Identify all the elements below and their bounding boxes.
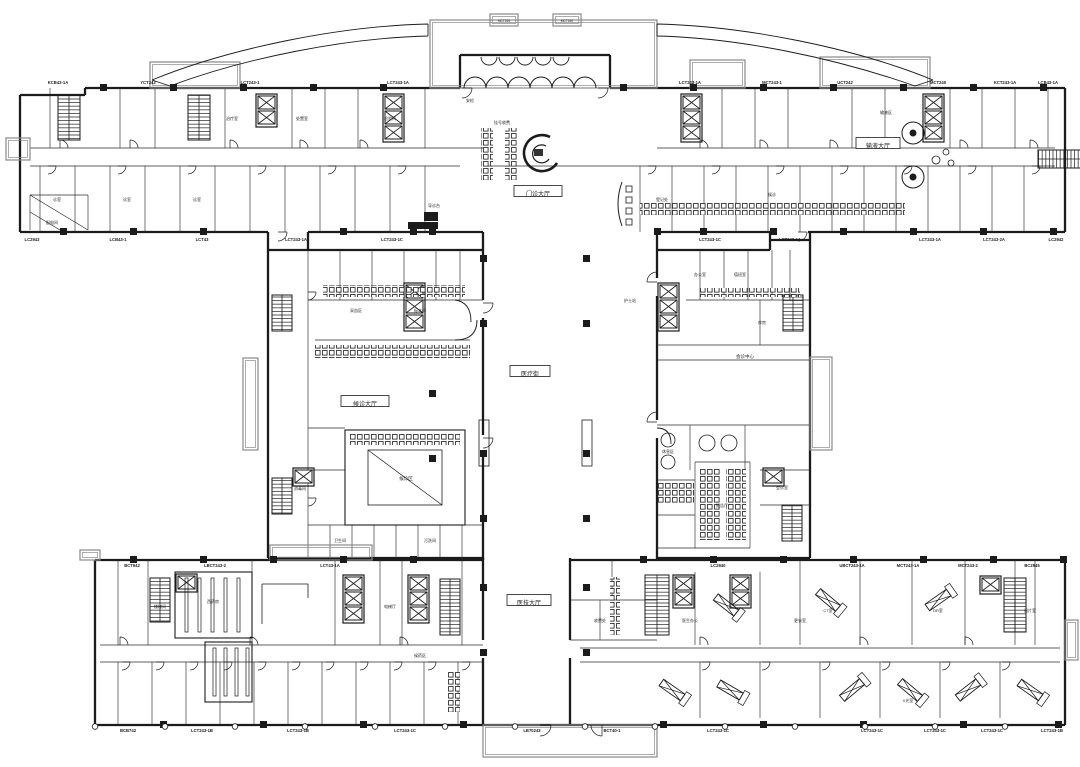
- column: [130, 556, 137, 563]
- room-label: 消毒间: [294, 485, 306, 491]
- room-label: 处置室: [296, 115, 308, 121]
- seat-row: [447, 672, 460, 712]
- floor-plan-canvas: 门诊大厅医疗街医技大厅输液大厅候诊大厅会诊中心候诊区MCT240MCT240KC…: [0, 0, 1080, 767]
- column: [583, 584, 590, 591]
- grid-tick: [582, 724, 588, 730]
- column: [170, 84, 177, 91]
- column: [340, 228, 347, 235]
- column: [910, 228, 917, 235]
- room-label: 休息区: [662, 448, 674, 454]
- room-label: CT室: [823, 607, 832, 613]
- grid-label: LCB43-1A: [1038, 80, 1058, 85]
- seat-row: [700, 288, 800, 297]
- grid-label: LCT243-1C: [707, 728, 729, 733]
- grid-label: UBCT243-1A: [839, 563, 864, 568]
- room-label: 电梯厅: [384, 603, 396, 609]
- column: [480, 584, 487, 591]
- grid-tick: [232, 724, 238, 730]
- grid-label: BC2945: [1024, 563, 1040, 568]
- hall-label: 会诊中心: [736, 353, 754, 360]
- grid-tick: [442, 724, 448, 730]
- column: [583, 649, 590, 656]
- column: [60, 228, 67, 235]
- grid-label: LCT243-1A: [919, 237, 941, 242]
- grid-tick: [162, 724, 168, 730]
- seat-row: [315, 345, 470, 358]
- grid-label: LCT243-1A: [285, 237, 307, 242]
- room-label: 护士站: [624, 297, 636, 303]
- grid-tick: [1002, 724, 1008, 730]
- seat-row: [726, 468, 746, 540]
- round-feature-dot: [910, 130, 917, 137]
- grid-label: LCT243-1C: [981, 728, 1003, 733]
- column: [1055, 721, 1062, 728]
- column: [1060, 556, 1067, 563]
- room-label: 检验科: [384, 115, 396, 121]
- hall-label: 医技大厅: [517, 599, 541, 607]
- grid-label: LCT243-1C: [394, 728, 416, 733]
- grid-label: UCT242: [837, 80, 853, 85]
- grid-label: LB70243: [523, 728, 541, 733]
- column: [240, 84, 247, 91]
- hall-label: 门诊大厅: [526, 190, 550, 198]
- column: [380, 84, 387, 91]
- kiosk-block: [408, 222, 438, 229]
- grid-tick: [512, 724, 518, 730]
- room-label: 候药区: [414, 652, 426, 658]
- column: [360, 721, 367, 728]
- grid-tick: [372, 724, 378, 730]
- room-label: 标本间: [414, 307, 426, 313]
- room-label: 值班室: [734, 271, 746, 277]
- column: [429, 455, 436, 462]
- column: [840, 228, 847, 235]
- grid-label: LCT243-1B: [1041, 728, 1063, 733]
- grid-label: LCT243-1A: [679, 80, 701, 85]
- room-label: 办公室: [694, 271, 706, 277]
- column: [480, 320, 487, 327]
- seat-row: [481, 128, 493, 180]
- seat-row: [640, 202, 905, 215]
- column: [1050, 228, 1057, 235]
- grid-label: LCT243-1B: [191, 728, 213, 733]
- column: [620, 84, 627, 91]
- grid-label: BCB742: [120, 728, 137, 733]
- grid-label: LCB43-1: [110, 237, 128, 242]
- grid-label: MCT243-1: [762, 80, 782, 85]
- column: [260, 721, 267, 728]
- room-label: 挂号收费: [494, 119, 510, 125]
- room-label: 更衣室: [794, 617, 806, 623]
- column: [429, 390, 436, 397]
- column: [410, 228, 417, 235]
- column: [920, 556, 927, 563]
- room-label: 安检: [466, 97, 474, 103]
- grid-label: KCT243-1A: [994, 80, 1016, 85]
- grid-label: LBCT243-2: [204, 563, 227, 568]
- grid-label: LCT243-1C: [699, 237, 721, 242]
- room-label: 采血区: [350, 307, 362, 313]
- column: [960, 721, 967, 728]
- grid-label: LC2943: [25, 237, 41, 242]
- room-label: 卫生间: [334, 537, 346, 543]
- room-label: 收费处: [594, 617, 606, 623]
- room-label: 西药房: [207, 598, 219, 604]
- room-label: 诊室: [123, 196, 131, 202]
- column: [850, 556, 857, 563]
- grid-label: LCT243-1B: [287, 728, 309, 733]
- room-label: X光室: [903, 697, 914, 703]
- column: [660, 721, 667, 728]
- room-label: 污洗间: [424, 537, 436, 543]
- grid-label: BCT942: [124, 563, 140, 568]
- column: [690, 84, 697, 91]
- column: [410, 556, 417, 563]
- room-label: 医生办公: [682, 617, 698, 623]
- room-label: 库房: [758, 319, 766, 325]
- column: [640, 556, 647, 563]
- column: [760, 84, 767, 91]
- hall-label: 医疗街: [521, 370, 539, 378]
- column: [700, 228, 707, 235]
- grid-label: MCT243-1A: [897, 563, 920, 568]
- room-label: DR室: [933, 607, 943, 613]
- column: [654, 228, 661, 235]
- grid-label: LC2940: [711, 563, 727, 568]
- grid-label: LCT43-1A: [320, 563, 340, 568]
- grid-label: LCT243-1C: [381, 237, 403, 242]
- hall-label: 输液大厅: [866, 142, 890, 150]
- column: [480, 649, 487, 656]
- grid-label: LCT243-2A: [983, 237, 1005, 242]
- room-label: 诊室: [53, 196, 61, 202]
- room-label: 导诊台: [428, 202, 440, 208]
- grid-tick: [652, 724, 658, 730]
- room-label: 候诊: [768, 191, 776, 197]
- room-label: 会诊室: [776, 484, 788, 490]
- room-label: 阅片室: [1024, 607, 1036, 613]
- grid-tick: [92, 724, 98, 730]
- column: [270, 556, 277, 563]
- grid-label: MCT240: [930, 80, 947, 85]
- column: [429, 228, 436, 235]
- grid-label: LC2942: [1049, 237, 1065, 242]
- column: [1040, 84, 1047, 91]
- column: [900, 84, 907, 91]
- column: [340, 556, 347, 563]
- room-label: 登记处: [656, 196, 668, 202]
- grid-label: KCB43-1A: [48, 80, 68, 85]
- room-label: 报告厅: [716, 502, 728, 508]
- room-label: 配电间: [46, 219, 58, 225]
- seat-row: [323, 285, 465, 297]
- kiosk-block: [424, 212, 438, 221]
- column: [780, 556, 787, 563]
- column: [770, 228, 777, 235]
- column: [480, 450, 487, 457]
- spiral-label-block: [534, 149, 543, 156]
- grid-label: LCT243-1C: [924, 728, 946, 733]
- column: [583, 515, 590, 522]
- column: [100, 84, 107, 91]
- room-label: 治疗室: [226, 115, 238, 121]
- column: [710, 556, 717, 563]
- grid-label: BCT40-1: [604, 728, 622, 733]
- column: [130, 228, 137, 235]
- seat-row: [658, 483, 694, 503]
- room-label: 输液区: [880, 109, 892, 115]
- column: [760, 721, 767, 728]
- column: [310, 84, 317, 91]
- column: [583, 450, 590, 457]
- seat-row: [350, 433, 460, 445]
- grid-label: LCT243-1A: [779, 237, 801, 242]
- column: [200, 556, 207, 563]
- hall-label: 候诊大厅: [353, 400, 377, 408]
- seat-row: [505, 128, 517, 180]
- paper-background: [0, 0, 1080, 767]
- floorplan-page: 门诊大厅医疗街医技大厅输液大厅候诊大厅会诊中心候诊区MCT240MCT240KC…: [0, 0, 1080, 767]
- room-label: 楼梯间: [154, 603, 166, 609]
- column: [990, 556, 997, 563]
- grid-tick: [792, 724, 798, 730]
- column: [480, 515, 487, 522]
- grid-label: MCT243-2: [958, 563, 978, 568]
- round-feature-dot: [910, 174, 917, 181]
- room-label: 诊室: [193, 196, 201, 202]
- hall-label: 候诊区: [399, 475, 413, 482]
- grid-label: LCT43: [196, 237, 209, 242]
- column: [200, 228, 207, 235]
- canopy-box-label: MCT240: [561, 19, 573, 23]
- canopy-box-label: MCT240: [498, 19, 510, 23]
- column: [980, 228, 987, 235]
- column: [480, 255, 487, 262]
- grid-label: YCT242: [140, 80, 156, 85]
- column: [970, 84, 977, 91]
- grid-label: LCT243-1: [241, 80, 261, 85]
- seat-row: [610, 577, 620, 635]
- grid-label: LCT243-1A: [387, 80, 409, 85]
- grid-label: LCT243-1C: [861, 728, 883, 733]
- column: [460, 721, 467, 728]
- column: [583, 255, 590, 262]
- column: [583, 320, 590, 327]
- column: [830, 84, 837, 91]
